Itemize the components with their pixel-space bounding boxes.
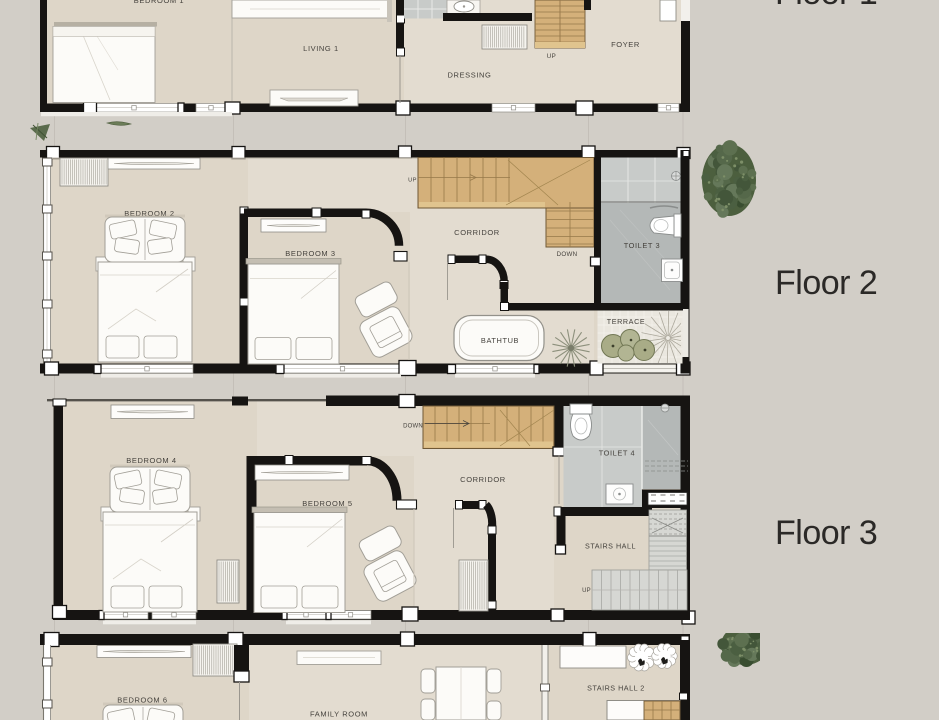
svg-text:BEDROOM 1: BEDROOM 1 <box>134 0 184 5</box>
svg-text:UP: UP <box>408 178 417 184</box>
svg-text:Floor 3: Floor 3 <box>775 514 877 552</box>
svg-text:DOWN: DOWN <box>403 424 423 430</box>
svg-text:UP: UP <box>547 53 556 60</box>
svg-text:UP: UP <box>582 588 591 594</box>
svg-text:TOILET 4: TOILET 4 <box>599 449 636 458</box>
svg-text:TOILET 3: TOILET 3 <box>624 241 661 250</box>
svg-text:LIVING 1: LIVING 1 <box>303 44 339 53</box>
svg-text:Floor 1: Floor 1 <box>775 0 877 12</box>
svg-text:CORRIDOR: CORRIDOR <box>454 228 500 237</box>
svg-text:BEDROOM 5: BEDROOM 5 <box>302 499 352 508</box>
svg-text:FOYER: FOYER <box>611 40 640 49</box>
svg-text:BATHTUB: BATHTUB <box>481 336 519 345</box>
svg-text:DOWN: DOWN <box>557 251 578 258</box>
svg-text:FAMILY ROOM: FAMILY ROOM <box>310 710 368 719</box>
svg-text:Floor 2: Floor 2 <box>775 264 877 302</box>
svg-text:BEDROOM 4: BEDROOM 4 <box>126 456 176 465</box>
svg-text:STAIRS HALL 2: STAIRS HALL 2 <box>587 684 645 693</box>
svg-text:BEDROOM 3: BEDROOM 3 <box>285 249 335 258</box>
svg-text:STAIRS HALL: STAIRS HALL <box>585 542 636 551</box>
svg-text:CORRIDOR: CORRIDOR <box>460 475 506 484</box>
svg-text:DRESSING: DRESSING <box>448 71 492 80</box>
svg-text:TERRACE: TERRACE <box>607 317 646 326</box>
